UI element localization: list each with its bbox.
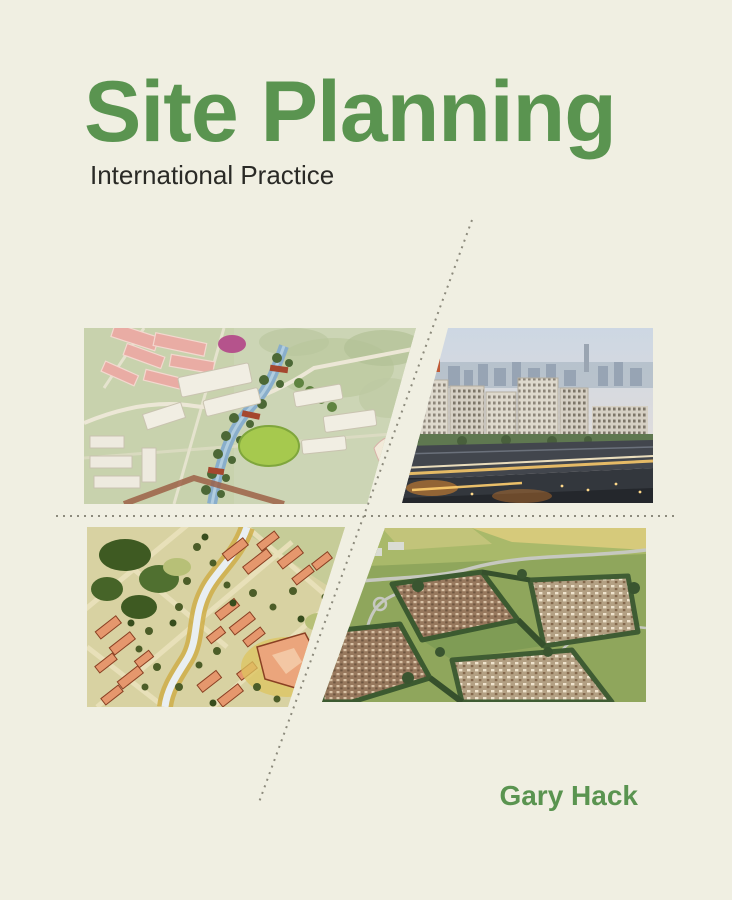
diagonal-dotted-line: [258, 220, 472, 805]
book-cover: Site Planning International Practice: [0, 0, 732, 900]
author-name: Gary Hack: [499, 782, 638, 810]
masterplan-rendering-illustration: [84, 328, 418, 504]
cover-image-masterplan-rendering: [84, 328, 418, 504]
